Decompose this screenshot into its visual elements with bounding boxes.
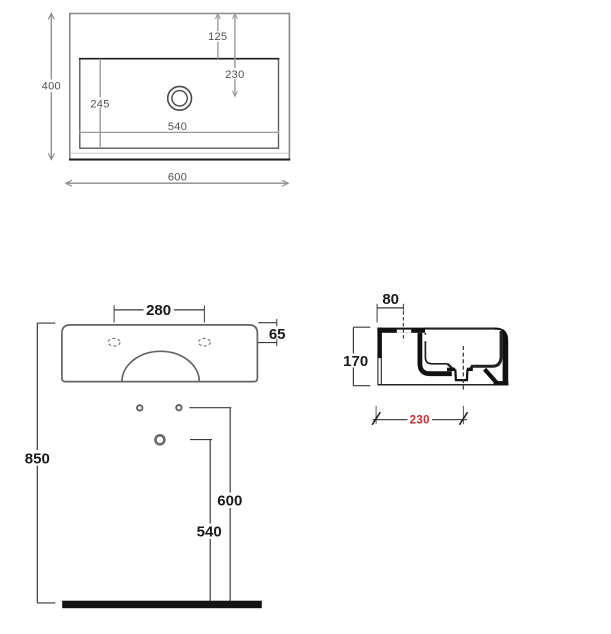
svg-text:600: 600 [217, 493, 242, 510]
svg-text:850: 850 [25, 450, 50, 467]
svg-text:170: 170 [343, 353, 368, 370]
svg-text:540: 540 [197, 524, 222, 541]
svg-text:245: 245 [90, 98, 109, 110]
svg-text:540: 540 [168, 121, 187, 133]
svg-text:230: 230 [225, 69, 244, 81]
svg-text:80: 80 [382, 291, 399, 308]
svg-text:280: 280 [146, 302, 171, 319]
svg-text:125: 125 [208, 31, 227, 43]
svg-text:400: 400 [42, 81, 61, 93]
svg-text:600: 600 [168, 171, 187, 183]
svg-text:65: 65 [269, 326, 286, 343]
svg-text:230: 230 [410, 414, 430, 426]
